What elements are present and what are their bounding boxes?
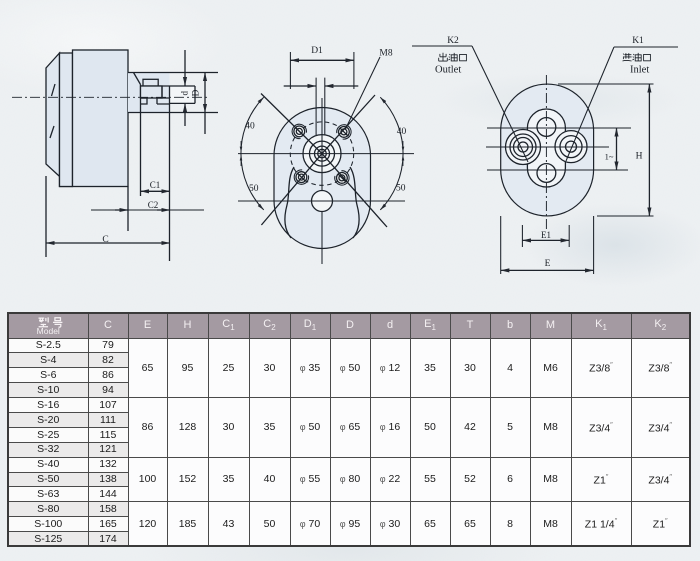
svg-text:d: d xyxy=(180,91,190,96)
svg-text:C2: C2 xyxy=(148,200,159,210)
svg-text:40: 40 xyxy=(397,127,407,137)
svg-text:50: 50 xyxy=(249,184,259,194)
svg-text:D: D xyxy=(192,90,202,97)
svg-text:H: H xyxy=(636,152,643,162)
svg-text:50: 50 xyxy=(396,184,406,194)
svg-text:Inlet: Inlet xyxy=(630,65,649,76)
svg-text:E: E xyxy=(545,259,551,269)
svg-text:Outlet: Outlet xyxy=(435,65,461,76)
svg-text:1~: 1~ xyxy=(605,152,614,162)
svg-text:E1: E1 xyxy=(541,230,551,240)
svg-text:K2: K2 xyxy=(447,36,459,46)
svg-text:C1: C1 xyxy=(150,180,161,190)
svg-text:M8: M8 xyxy=(379,49,392,59)
svg-text:K1: K1 xyxy=(632,36,644,46)
svg-text:D1: D1 xyxy=(311,46,323,56)
svg-text:C: C xyxy=(102,235,108,245)
svg-text:40: 40 xyxy=(245,122,255,132)
